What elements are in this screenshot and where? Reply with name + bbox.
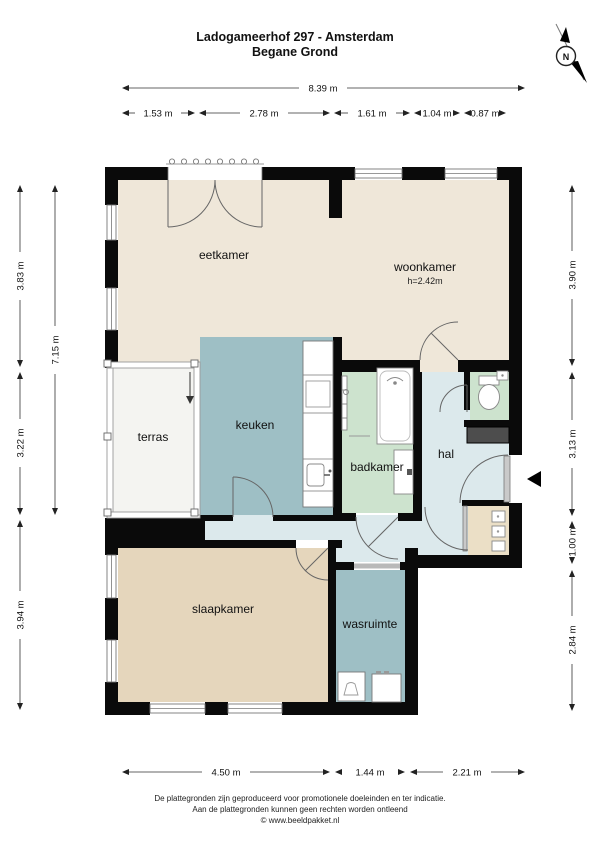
kitchen-counter <box>303 341 333 507</box>
window-woonkamer-2 <box>445 167 497 180</box>
compass-icon: N <box>556 24 587 83</box>
entrance-arrow-icon <box>527 471 541 487</box>
footer-line3: © www.beeldpakket.nl <box>261 816 340 825</box>
dim-right-seg4: 2.84 m <box>568 625 579 654</box>
floorplan-page: Ladogameerhof 297 - Amsterdam Begane Gro… <box>0 0 600 848</box>
dimension-left-segments: 3.83 m 3.22 m 3.94 m <box>16 185 27 710</box>
washing-machine-icon <box>338 672 365 701</box>
bedroom-floor <box>118 548 328 702</box>
dim-left-total-label: 7.15 m <box>51 335 62 364</box>
dim-left-seg1: 3.83 m <box>16 261 27 290</box>
dimension-bottom-segments: 4.50 m 1.44 m 2.21 m <box>122 768 525 779</box>
dim-bottom-seg3: 2.21 m <box>452 768 481 779</box>
label-woonkamer: woonkamer <box>393 260 456 274</box>
label-hal: hal <box>438 447 454 461</box>
dim-right-seg3: 1.00 m <box>568 527 579 556</box>
window-slaapkamer-2 <box>105 640 118 682</box>
dim-top-seg4: 1.04 m <box>422 109 451 120</box>
folding-rail-icon <box>166 159 264 164</box>
label-woonkamer-height: h=2.42m <box>407 276 442 286</box>
label-badkamer: badkamer <box>350 460 403 474</box>
label-terras: terras <box>138 430 169 444</box>
window-eetkamer-1 <box>105 205 118 240</box>
closet-fixtures <box>492 511 505 551</box>
footer-line2: Aan de plattegronden kunnen geen rechten… <box>192 805 407 814</box>
dryer-icon <box>372 674 401 702</box>
dim-bottom-seg2: 1.44 m <box>355 768 384 779</box>
meter-cabinet <box>467 427 509 443</box>
footer-disclaimer: De plattegronden zijn geproduceerd voor … <box>154 794 445 825</box>
toilet-icon <box>479 385 500 410</box>
dimension-top-segments: 1.53 m 2.78 m 1.61 m 1.04 m 0.87 m <box>122 109 506 120</box>
dim-right-seg1: 3.90 m <box>568 260 579 289</box>
sink-icon <box>307 464 324 486</box>
dim-top-total-label: 8.39 m <box>308 84 337 95</box>
window-slaapkamer-3 <box>150 702 205 715</box>
page-subtitle: Begane Grond <box>252 45 338 59</box>
label-eetkamer: eetkamer <box>199 248 249 262</box>
window-woonkamer-1 <box>355 167 402 180</box>
cistern-icon <box>479 376 499 385</box>
dim-top-seg2: 2.78 m <box>249 109 278 120</box>
footer-line1: De plattegronden zijn geproduceerd voor … <box>154 794 445 803</box>
label-keuken: keuken <box>236 418 275 432</box>
dimension-top-total: 8.39 m <box>122 84 525 95</box>
dim-left-seg2: 3.22 m <box>16 428 27 457</box>
bathtub-icon <box>377 368 413 444</box>
page-title: Ladogameerhof 297 - Amsterdam <box>196 30 394 44</box>
front-door-leaf <box>504 456 510 502</box>
dim-top-seg5: 0.87 m <box>470 109 499 120</box>
dim-right-seg2: 3.13 m <box>568 429 579 458</box>
window-slaapkamer-4 <box>228 702 282 715</box>
floor-plan-canvas: Ladogameerhof 297 - Amsterdam Begane Gro… <box>0 0 600 848</box>
label-slaapkamer: slaapkamer <box>192 602 254 616</box>
closet-door-leaf <box>463 506 467 551</box>
label-wasruimte: wasruimte <box>342 617 398 631</box>
radiator-icon <box>342 376 347 430</box>
dimension-right-segments: 3.90 m 3.13 m 1.00 m 2.84 m <box>568 185 579 711</box>
dim-bottom-seg1: 4.50 m <box>211 768 240 779</box>
dim-left-seg3: 3.94 m <box>16 600 27 629</box>
dimension-left-total: 7.15 m <box>51 185 62 515</box>
window-slaapkamer-1 <box>105 555 118 598</box>
compass-north-label: N <box>563 52 570 62</box>
window-eetkamer-2 <box>105 288 118 330</box>
dim-top-seg3: 1.61 m <box>357 109 386 120</box>
laundry-sliding-door <box>354 564 400 569</box>
front-door-opening <box>509 455 522 503</box>
dim-top-seg1: 1.53 m <box>143 109 172 120</box>
